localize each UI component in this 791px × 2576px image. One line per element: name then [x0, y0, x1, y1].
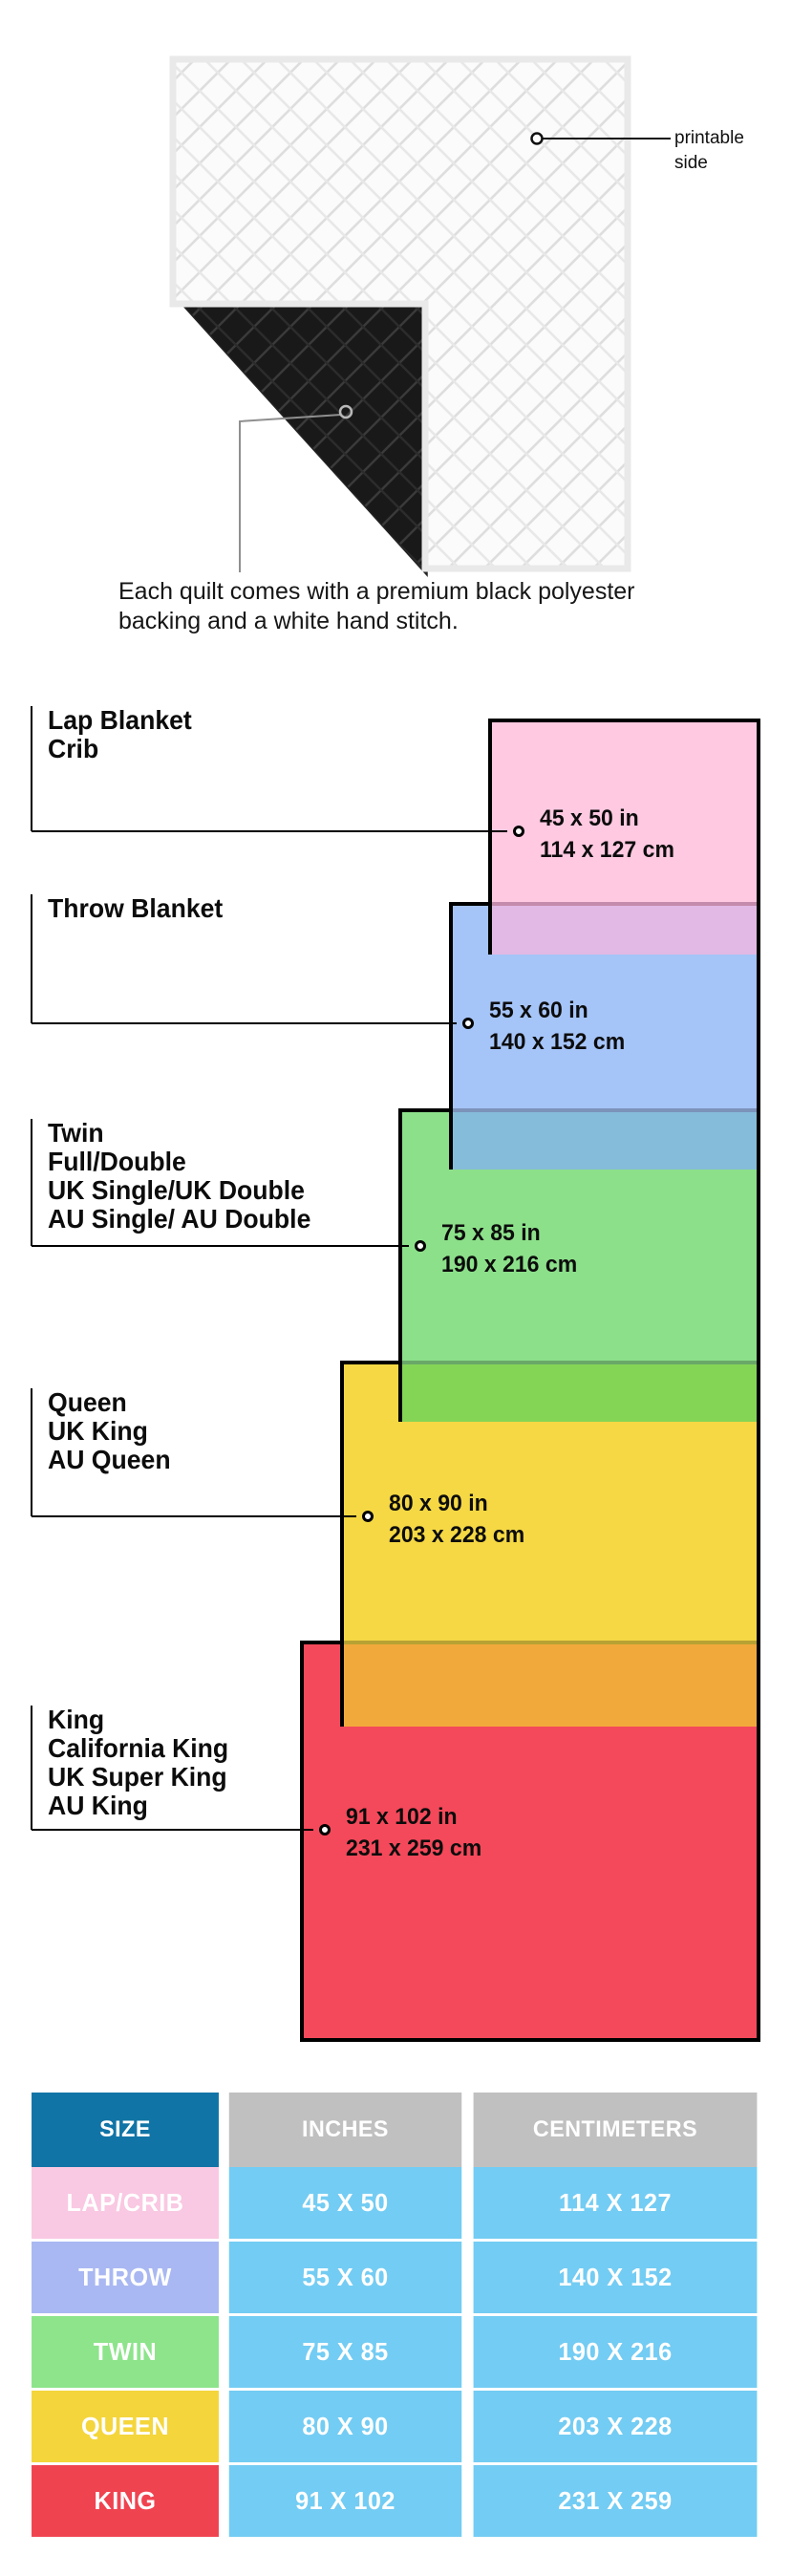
lap-callout-vline [31, 706, 32, 831]
size-dimensions-king: 91 x 102 in 231 x 259 cm [346, 1801, 481, 1864]
table-row-king-inches: 91 X 102 [229, 2465, 461, 2537]
lap-callout-dot [513, 826, 524, 837]
table-row-throw-size: THROW [32, 2242, 219, 2313]
table-row-queen-centimeters: 203 X 228 [474, 2391, 758, 2462]
size-label-king: King California King UK Super King AU Ki… [48, 1706, 228, 1820]
table-row-twin-centimeters: 190 X 216 [474, 2316, 758, 2388]
table-row-lap-inches: 45 X 50 [229, 2167, 461, 2239]
twin-callout-dot [415, 1240, 426, 1252]
size-dimensions-queen: 80 x 90 in 203 x 228 cm [389, 1488, 524, 1551]
table-row-king-size: KING [32, 2465, 219, 2537]
twin-queen-overlap [402, 1361, 757, 1422]
queen-callout-dot [362, 1511, 374, 1522]
size-label-throw: Throw Blanket [48, 894, 223, 923]
size-dimensions-lap: 45 x 50 in 114 x 127 cm [540, 803, 674, 866]
table-header-inches: INCHES [229, 2093, 461, 2167]
twin-callout-vline [31, 1119, 32, 1246]
quilt-size-infographic: printable side Each quilt comes with a p… [0, 0, 791, 2576]
table-row-twin-inches: 75 X 85 [229, 2316, 461, 2388]
table-header-centimeters: CENTIMETERS [474, 2093, 758, 2167]
king-callout-hline [32, 1829, 313, 1831]
throw-callout-dot [462, 1018, 474, 1029]
king-callout-dot [319, 1824, 331, 1835]
queen-callout-hline [32, 1515, 356, 1517]
size-label-twin: Twin Full/Double UK Single/UK Double AU … [48, 1119, 310, 1234]
size-diagram: Lap Blanket Crib 45 x 50 in 114 x 127 cm… [0, 669, 791, 2054]
table-row-throw-centimeters: 140 X 152 [474, 2242, 758, 2313]
quilt-backing-fold [182, 304, 427, 575]
twin-callout-hline [32, 1245, 409, 1247]
lap-throw-overlap [492, 902, 757, 955]
table-row-throw-inches: 55 X 60 [229, 2242, 461, 2313]
king-callout-vline [31, 1706, 32, 1830]
lap-callout-hline [32, 830, 507, 832]
table-row-twin-size: TWIN [32, 2316, 219, 2388]
printable-side-label: printable side [674, 126, 762, 176]
table-row-king-centimeters: 231 X 259 [474, 2465, 758, 2537]
size-label-queen: Queen UK King AU Queen [48, 1388, 171, 1474]
throw-callout-vline [31, 894, 32, 1023]
queen-callout-vline [31, 1388, 32, 1516]
table-header-size: SIZE [32, 2093, 219, 2167]
throw-twin-overlap [453, 1108, 757, 1170]
size-dimensions-throw: 55 x 60 in 140 x 152 cm [489, 995, 625, 1058]
queen-king-overlap [344, 1641, 757, 1727]
quilt-caption: Each quilt comes with a premium black po… [118, 577, 706, 636]
table-row-queen-size: QUEEN [32, 2391, 219, 2462]
throw-callout-hline [32, 1022, 457, 1024]
table-row-lap-size: LAP/CRIB [32, 2167, 219, 2239]
table-row-lap-centimeters: 114 X 127 [474, 2167, 758, 2239]
size-label-lap: Lap Blanket Crib [48, 706, 192, 763]
quilt-illustration [0, 0, 791, 631]
printable-side-callout-dot [532, 134, 543, 144]
size-chart-table: SIZE INCHES CENTIMETERS LAP/CRIB 45 X 50… [29, 2093, 761, 2537]
table-row-queen-inches: 80 X 90 [229, 2391, 461, 2462]
size-dimensions-twin: 75 x 85 in 190 x 216 cm [441, 1217, 577, 1280]
